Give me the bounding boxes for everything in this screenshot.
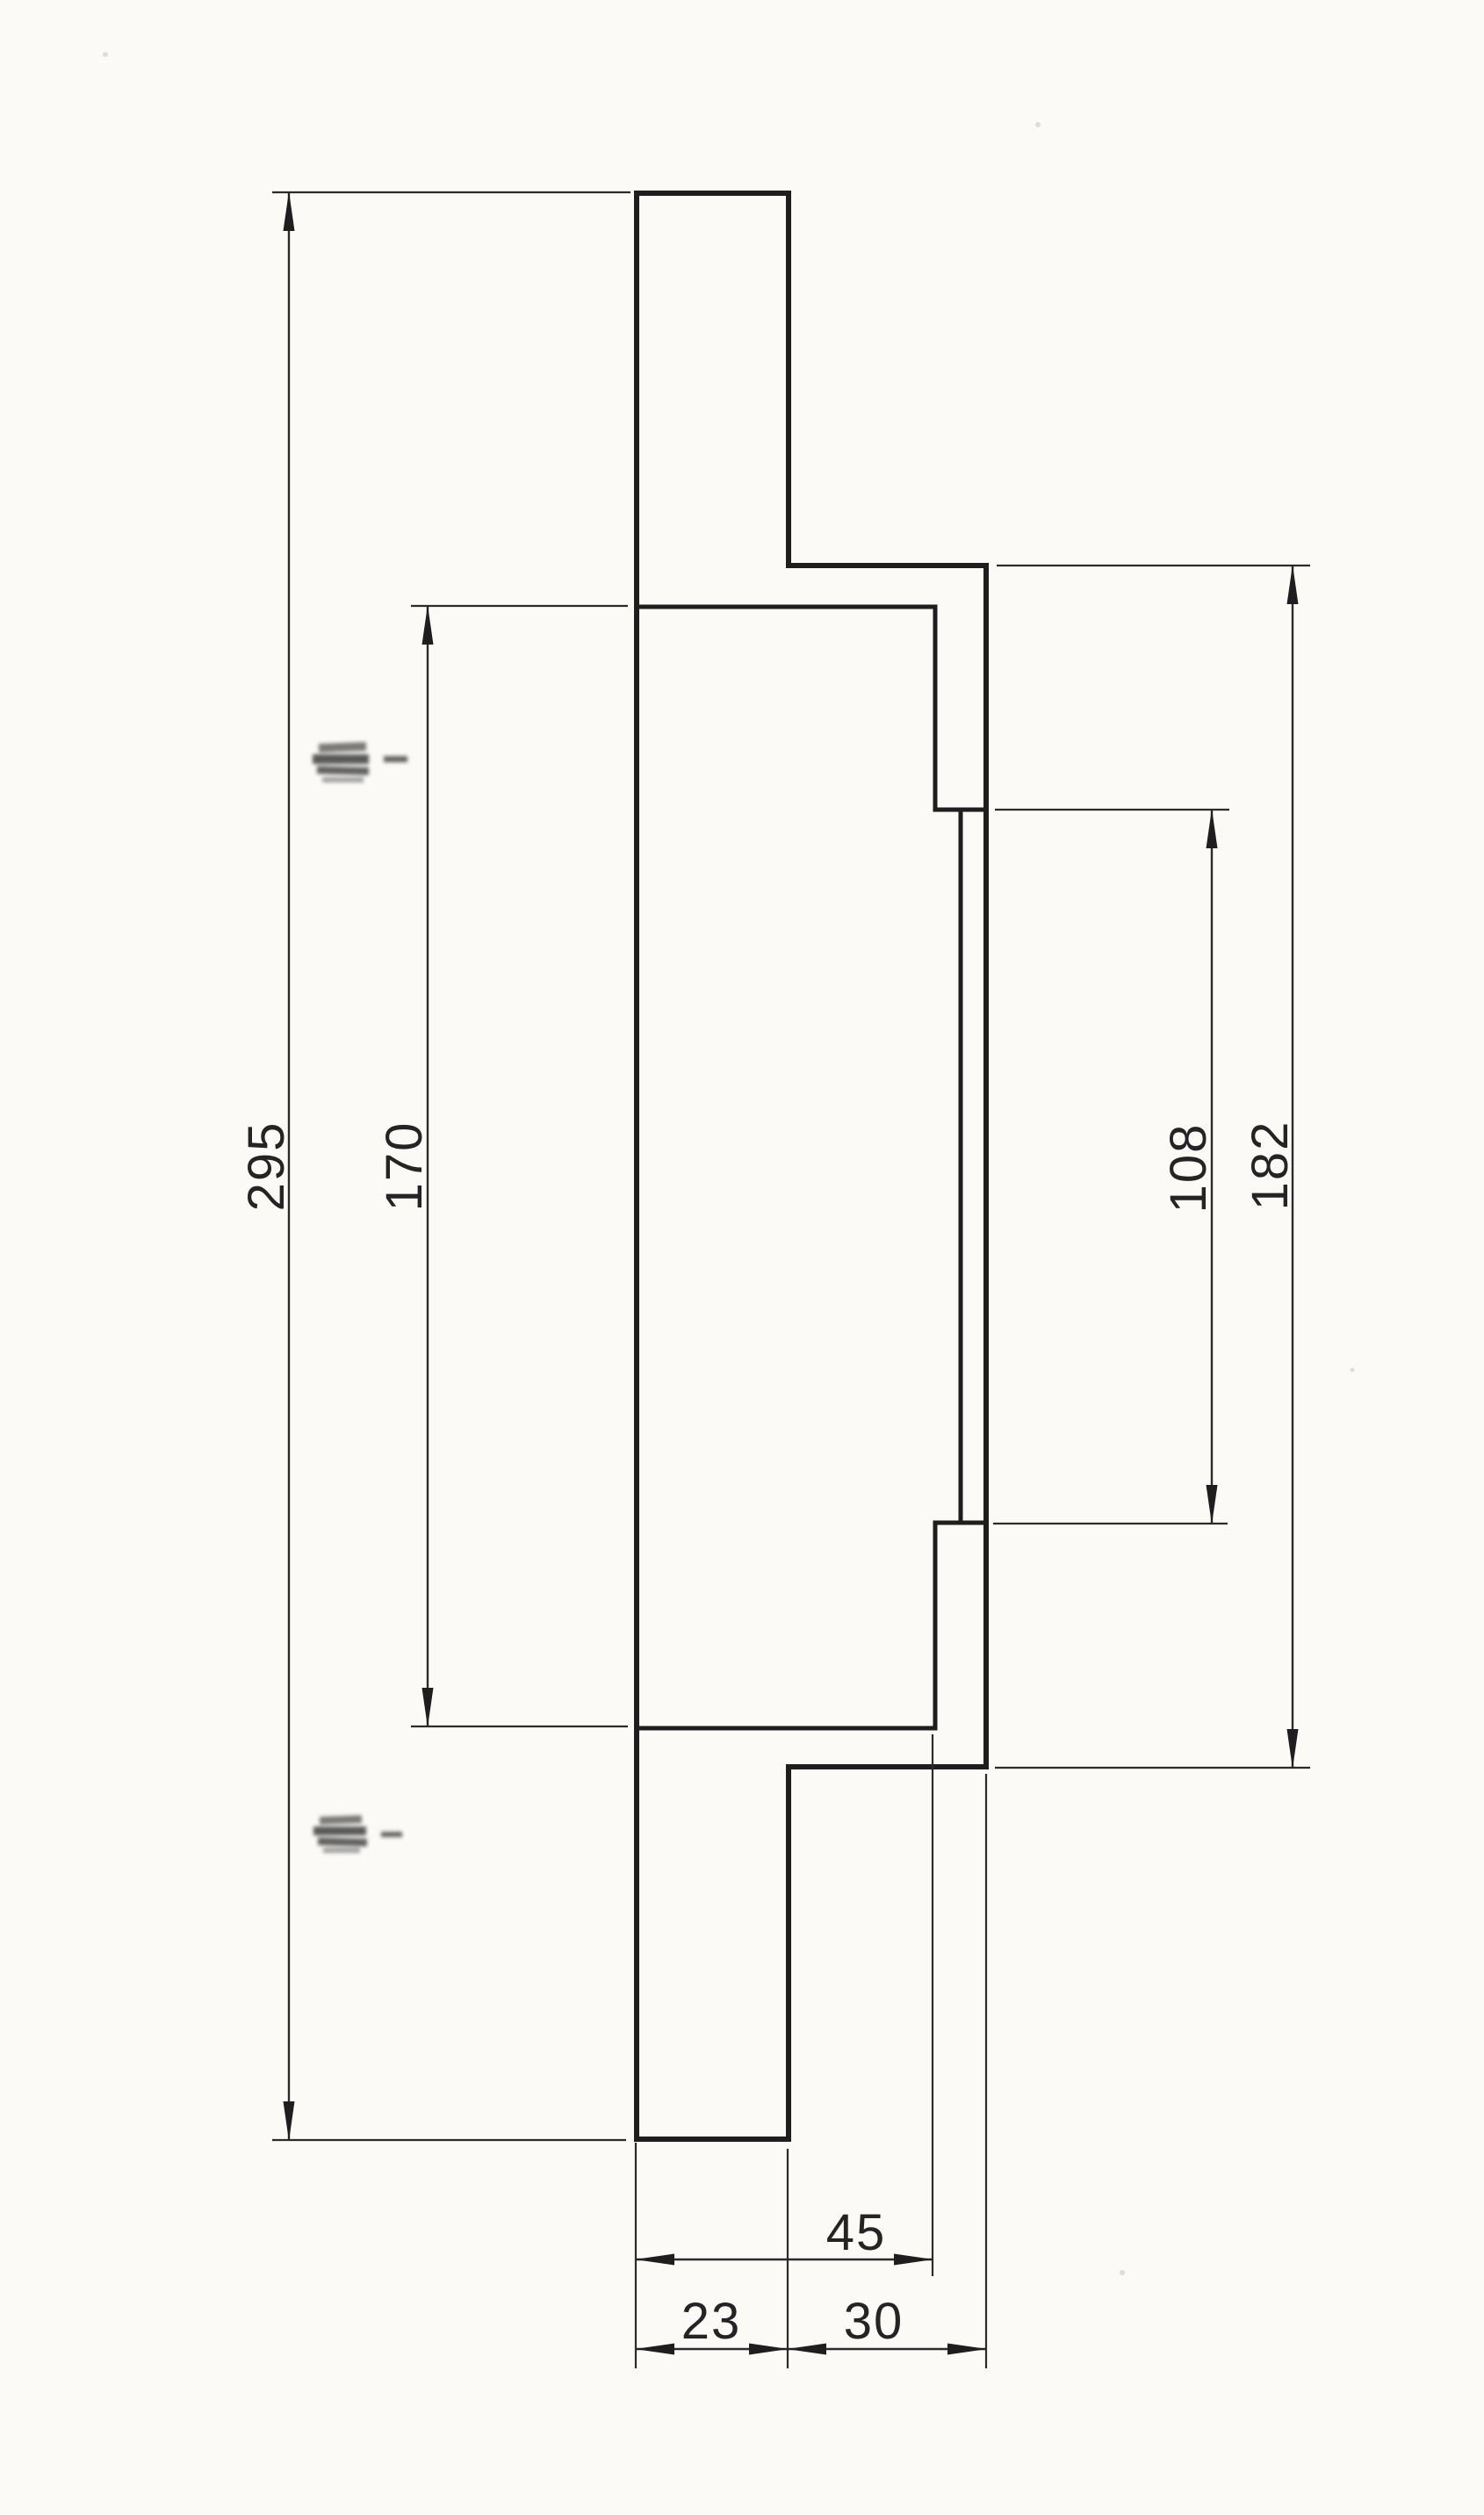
scan-smudge-upper <box>313 742 407 782</box>
part-inner-contour-top <box>637 607 986 810</box>
part-inner-contour-bottom <box>637 1523 986 1728</box>
dim-label-45: 45 <box>826 2204 887 2261</box>
scan-smudge-lower <box>313 1815 402 1853</box>
dim-label-23: 23 <box>681 2293 742 2350</box>
scanned-technical-drawing-page: 295 170 108 182 45 23 30 <box>0 0 1484 2515</box>
drawing-canvas: 295 170 108 182 45 23 30 <box>0 0 1484 2515</box>
dim-label-295: 295 <box>238 1121 295 1212</box>
dim-label-108: 108 <box>1160 1123 1217 1214</box>
dim-label-182: 182 <box>1242 1121 1299 1211</box>
dim-label-170: 170 <box>376 1121 433 1212</box>
dim-label-30: 30 <box>844 2293 904 2350</box>
part-outer-profile <box>637 193 986 2139</box>
